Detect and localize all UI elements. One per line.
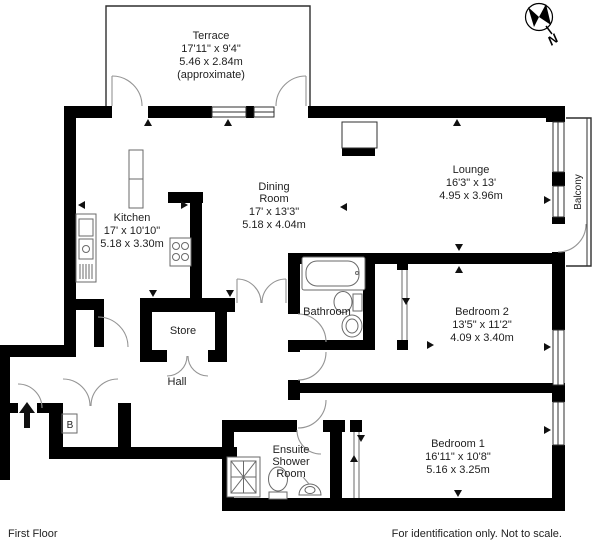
windows: [212, 107, 564, 445]
room-name: Kitchen: [114, 212, 151, 224]
dimension-tick: [544, 426, 551, 434]
room-dims-metric: 5.18 x 4.04m: [242, 219, 306, 231]
wall-segment: [552, 264, 565, 330]
door-arc: [63, 379, 90, 406]
wardrobe-arrow: [357, 435, 365, 442]
door-arc: [112, 76, 142, 106]
dimension-tick: [149, 290, 157, 297]
room-dims-metric: 4.95 x 3.96m: [439, 190, 503, 202]
room-label-store: Store: [170, 325, 196, 337]
wall-segment: [118, 447, 237, 459]
bedroom1-door-arc: [298, 400, 326, 428]
dimension-tick: [544, 196, 551, 204]
dimension-tick: [224, 119, 232, 126]
room-label-kitchen: Kitchen 17' x 10'10" 5.18 x 3.30m: [100, 212, 164, 250]
disclaimer-text: For identification only. Not to scale.: [392, 528, 562, 540]
wall-segment: [208, 350, 227, 362]
north-label: N: [545, 30, 562, 48]
dimension-tick: [455, 244, 463, 251]
room-label-lounge: Lounge 16'3" x 13' 4.95 x 3.96m: [439, 164, 503, 202]
room-dims-imperial: 16'11" x 10'8": [425, 451, 491, 463]
wall-segment: [546, 106, 565, 122]
floor-plan: B N Terrace 17'11" x 9'4" 5.46 x 2.84m (…: [0, 0, 600, 543]
boiler-label: B: [67, 420, 74, 431]
wardrobe-arrow: [350, 455, 358, 462]
room-name: Terrace: [193, 30, 230, 42]
room-note: (approximate): [177, 69, 245, 81]
wall-segment: [288, 383, 565, 393]
wall-segment: [0, 345, 76, 357]
wall-segment: [552, 172, 565, 186]
wall-segment: [552, 393, 565, 402]
dimension-tick: [78, 201, 85, 209]
room-label-balcony: Balcony: [573, 174, 584, 210]
dimension-tick: [453, 119, 461, 126]
toilet-cistern: [353, 294, 362, 311]
room-name: Shower: [272, 456, 310, 468]
wall-segment: [246, 106, 254, 118]
wall-segment: [552, 252, 565, 264]
room-label-bedroom2: Bedroom 2 13'5" x 11'2" 4.09 x 3.40m: [450, 306, 514, 344]
compass-icon: N: [526, 4, 562, 49]
entrance-arrow-icon: [19, 402, 35, 428]
wall-segment: [64, 106, 76, 347]
wall-segment: [288, 340, 375, 350]
room-dims-imperial: 13'5" x 11'2": [452, 319, 512, 331]
room-dims-metric: 5.46 x 2.84m: [179, 56, 243, 68]
room-label-terrace: Terrace 17'11" x 9'4" 5.46 x 2.84m (appr…: [177, 30, 245, 81]
room-label-dining-room: Dining Room 17' x 13'3" 5.18 x 4.04m: [242, 181, 306, 231]
bathroom-fixtures: [302, 257, 365, 337]
wardrobe-arrow: [402, 298, 410, 305]
wall-segment: [552, 385, 565, 393]
store-door-arc: [188, 356, 208, 376]
bedroom2-door-arc: [298, 352, 326, 380]
room-label-bedroom1: Bedroom 1 16'11" x 10'8" 5.16 x 3.25m: [425, 438, 491, 476]
door-arc: [276, 76, 306, 106]
room-label-bathroom: Bathroom: [303, 306, 351, 318]
dimension-tick: [544, 343, 551, 351]
dimension-tick: [427, 341, 434, 349]
wall-segment: [323, 420, 345, 432]
kitchen-unit: [129, 150, 143, 179]
room-label-hall: Hall: [168, 376, 187, 388]
dimension-tick: [454, 490, 462, 497]
room-label-ensuite: Ensuite Shower Room: [272, 444, 310, 480]
basin: [342, 315, 362, 337]
room-dims-imperial: 17' x 13'3": [249, 206, 299, 218]
dimension-tick: [455, 266, 463, 273]
room-name: Room: [276, 468, 305, 480]
flue-duct: [342, 122, 377, 148]
room-dims-metric: 5.18 x 3.30m: [100, 238, 164, 250]
room-name: Room: [259, 193, 288, 205]
wall-segment: [64, 299, 104, 310]
wall-segment: [190, 192, 202, 310]
wall-segment: [0, 403, 18, 413]
wall-segment: [288, 393, 300, 400]
dimension-tick: [340, 203, 347, 211]
wall-segment: [350, 420, 362, 432]
room-name: Bedroom 1: [431, 438, 485, 450]
kitchen-unit: [129, 179, 143, 208]
room-name: Ensuite: [273, 444, 310, 456]
balcony-door-arc: [558, 224, 586, 252]
floorplan-page: B N Terrace 17'11" x 9'4" 5.46 x 2.84m (…: [0, 0, 600, 543]
wall-segment: [222, 498, 565, 511]
hob: [170, 238, 191, 266]
wall-segment: [148, 106, 212, 118]
floor-label: First Floor: [8, 528, 58, 540]
room-dims-metric: 4.09 x 3.40m: [450, 332, 514, 344]
wall-segment: [308, 106, 560, 118]
wall-segment: [397, 264, 408, 270]
bathroom-door-arc: [298, 314, 326, 342]
store-door-arc: [167, 356, 187, 376]
room-name: Dining: [258, 181, 289, 193]
wall-segment: [94, 310, 104, 347]
dining-door-arc: [237, 279, 261, 303]
wall-segment: [552, 217, 565, 224]
room-name: Lounge: [453, 164, 490, 176]
flue-base: [342, 148, 375, 156]
room-name: Bedroom 2: [455, 306, 509, 318]
room-dims-imperial: 17'11" x 9'4": [181, 43, 241, 55]
wall-segment: [330, 432, 342, 510]
dimension-tick: [226, 290, 234, 297]
wall-segment: [140, 350, 167, 362]
wall-segment: [397, 340, 408, 350]
room-dims-imperial: 16'3" x 13': [446, 177, 496, 189]
wall-segment: [288, 253, 300, 314]
toilet-base: [269, 492, 287, 499]
room-dims-metric: 5.16 x 3.25m: [426, 464, 490, 476]
door-arc: [91, 379, 118, 406]
dining-door-arc: [262, 279, 286, 303]
dimension-tick: [144, 119, 152, 126]
room-dims-imperial: 17' x 10'10": [104, 225, 161, 237]
